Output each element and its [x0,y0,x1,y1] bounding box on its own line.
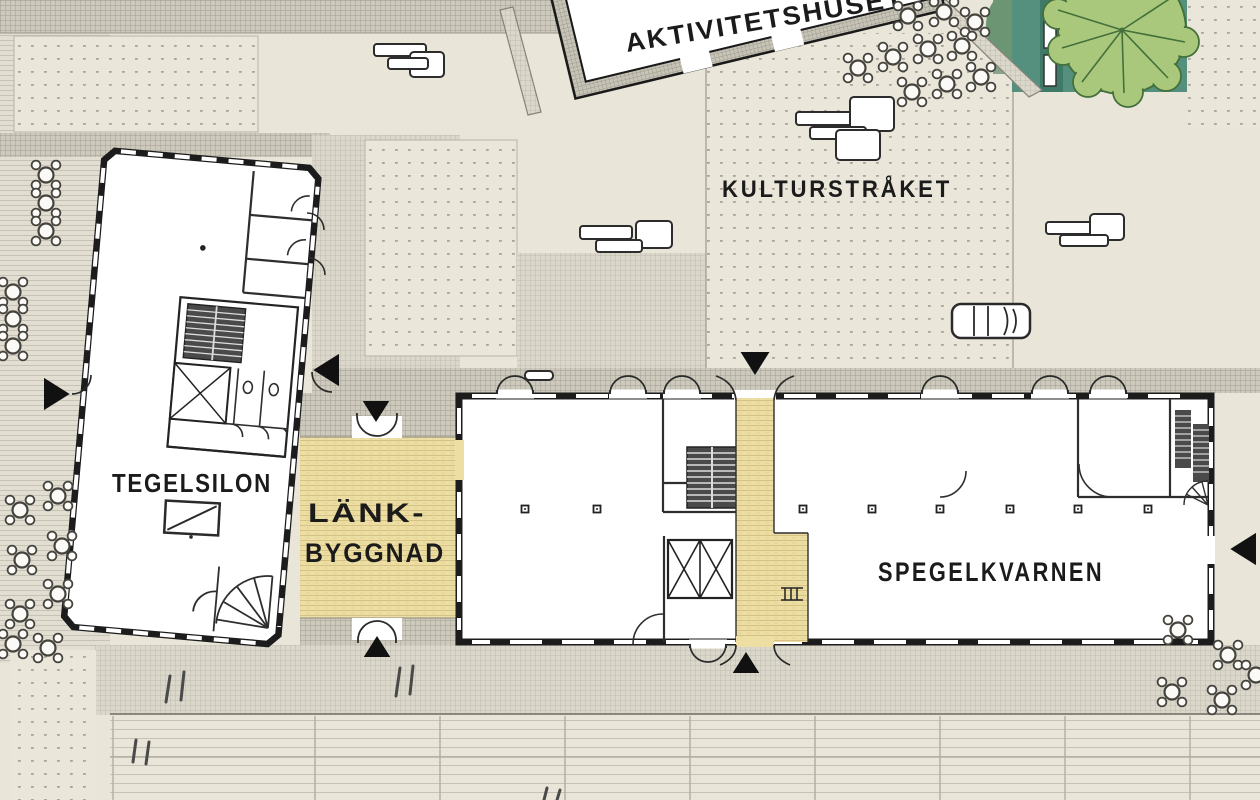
column-icon [594,506,601,513]
bench-icon [596,240,642,252]
dotted-plaza-sw [10,650,96,800]
label-kulturstraket: KULTURSTRÅKET [722,175,952,203]
site-plan-drawing: AKTIVITETSHUSET KULTURSTRÅKET [0,0,1260,800]
bench-icon [388,58,428,69]
bench-icon [1060,235,1108,246]
label-lankbyggnad-line2: BYGGNAD [305,538,445,568]
site-plan: AKTIVITETSHUSET KULTURSTRÅKET [0,0,1260,800]
column-icon [1007,506,1014,513]
bench-icon [850,97,894,131]
door-gap [1205,536,1215,564]
bench-icon [525,371,553,380]
door-gap [455,440,464,480]
bench-icon [836,130,880,160]
dotted-plaza-nw [14,36,258,132]
label-spegelkvarnen: SPEGELKVARNEN [878,557,1104,587]
building-tegelsilon [63,150,319,645]
elevator-icon [668,540,732,598]
building-spegelkvarnen [455,376,1215,665]
north-hatch-band [0,0,578,33]
column-icon [522,506,529,513]
dotted-court [365,140,517,356]
column-icon [869,506,876,513]
label-tegelsilon: TEGELSILON [112,468,272,498]
stairs-icon [687,447,737,508]
column-icon [1145,506,1152,513]
dotted-plaza-ne [1187,0,1260,130]
hatch-court-center [517,253,707,369]
bench-icon [796,112,856,125]
bench-icon [580,226,632,239]
car-icon [952,304,1030,338]
label-lankbyggnad-line1: LÄNK- [308,498,426,528]
column-icon [937,506,944,513]
south-hatch-band [95,645,1260,715]
park-area [986,0,1199,107]
column-icon [800,506,807,513]
door-gap [736,636,774,647]
column-icon [1075,506,1082,513]
corridor-strip [736,398,774,642]
spegelkvarnen-outline [459,396,1211,642]
